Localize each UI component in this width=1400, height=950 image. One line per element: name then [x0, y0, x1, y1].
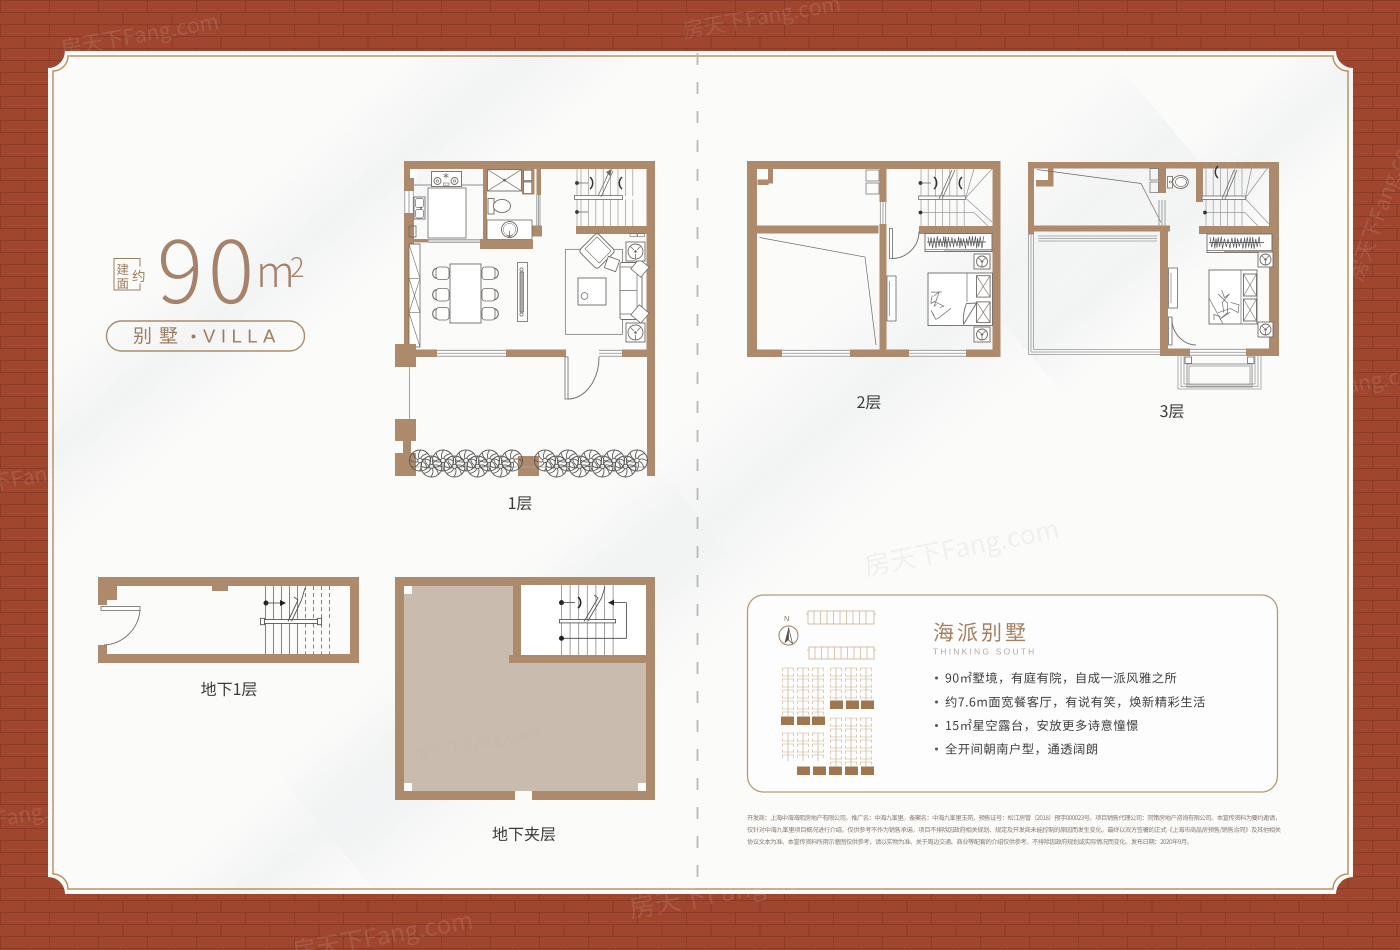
svg-text:THINKING SOUTH: THINKING SOUTH	[933, 647, 1037, 657]
svg-text:VILLA: VILLA	[203, 326, 281, 347]
svg-text:N: N	[784, 614, 789, 623]
